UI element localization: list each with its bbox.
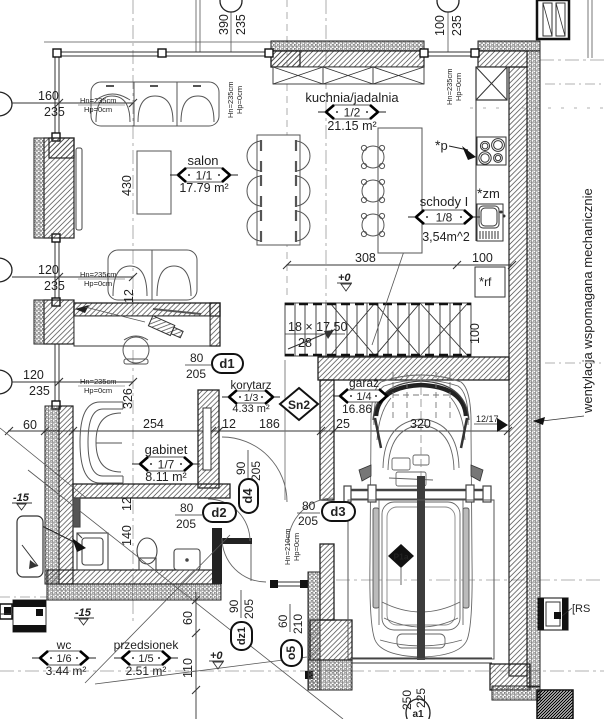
svg-text:235: 235	[44, 279, 65, 293]
svg-text:120: 120	[38, 263, 59, 277]
svg-text:12: 12	[222, 417, 236, 431]
svg-text:4.33 m²: 4.33 m²	[232, 403, 270, 415]
svg-text:254: 254	[143, 417, 164, 431]
svg-text:Hn=210cm: Hn=210cm	[283, 529, 292, 565]
svg-text:dz1: dz1	[236, 627, 248, 645]
svg-text:308: 308	[355, 251, 376, 265]
svg-text:140: 140	[120, 525, 134, 546]
svg-text:60: 60	[276, 614, 290, 628]
svg-text:235: 235	[29, 384, 50, 398]
svg-text:schody I: schody I	[420, 194, 468, 209]
svg-text:Hp=0cm: Hp=0cm	[84, 105, 112, 114]
svg-text:320: 320	[410, 417, 431, 431]
svg-text:205: 205	[186, 367, 206, 381]
svg-text:100: 100	[433, 15, 447, 36]
svg-text:28: 28	[298, 336, 312, 350]
svg-text:d2: d2	[211, 505, 226, 520]
svg-text:kuchnia/jadalnia: kuchnia/jadalnia	[305, 90, 399, 105]
svg-text:P1a: P1a	[393, 552, 408, 562]
svg-text:wc: wc	[56, 638, 72, 652]
svg-text:wentylacja wspomagana mechanic: wentylacja wspomagana mechanicznie	[580, 188, 595, 414]
svg-text:przedsionek: przedsionek	[114, 638, 180, 652]
svg-text:Sn2: Sn2	[288, 398, 310, 412]
svg-text:18 × 17,50: 18 × 17,50	[288, 320, 347, 334]
svg-text:Hp=0cm: Hp=0cm	[84, 386, 112, 395]
svg-text:-15: -15	[75, 607, 92, 619]
svg-text:a1: a1	[412, 709, 424, 719]
svg-text:12/17: 12/17	[476, 414, 499, 424]
svg-text:d3: d3	[330, 504, 345, 519]
svg-text:Hn=235cm: Hn=235cm	[226, 82, 235, 118]
svg-text:1/8: 1/8	[436, 211, 453, 225]
svg-text:salon: salon	[187, 153, 218, 168]
svg-text:205: 205	[249, 461, 263, 481]
svg-text:80: 80	[302, 499, 316, 513]
svg-text:235: 235	[44, 105, 65, 119]
svg-text:[RS: [RS	[572, 603, 590, 615]
svg-text:186: 186	[259, 417, 280, 431]
svg-text:110: 110	[181, 658, 195, 678]
svg-text:o5: o5	[284, 646, 298, 660]
svg-text:d1: d1	[219, 356, 234, 371]
svg-text:60: 60	[181, 611, 195, 625]
svg-text:1/2: 1/2	[344, 106, 361, 120]
svg-text:235: 235	[234, 14, 248, 35]
svg-text:Hp=0cm: Hp=0cm	[235, 86, 244, 114]
svg-text:12: 12	[122, 289, 136, 303]
svg-text:Hp=0cm: Hp=0cm	[292, 533, 301, 561]
svg-text:205: 205	[176, 517, 196, 531]
svg-text:-15: -15	[13, 492, 30, 504]
svg-text:120: 120	[23, 368, 44, 382]
svg-text:21.15 m²: 21.15 m²	[327, 119, 376, 133]
svg-text:Hp=0cm: Hp=0cm	[454, 73, 463, 101]
svg-text:210: 210	[291, 614, 305, 634]
svg-text:160: 160	[38, 89, 59, 103]
svg-text:+0: +0	[210, 650, 223, 662]
svg-text:90: 90	[234, 461, 248, 475]
svg-text:80: 80	[180, 501, 194, 515]
svg-text:60: 60	[23, 418, 37, 432]
svg-text:430: 430	[120, 175, 134, 196]
svg-text:205: 205	[242, 599, 256, 619]
svg-text:235: 235	[450, 15, 464, 36]
svg-text:Hn=235cm: Hn=235cm	[80, 96, 116, 105]
svg-text:Hn=235cm: Hn=235cm	[80, 270, 116, 279]
svg-text:Hn=235cm: Hn=235cm	[445, 69, 454, 105]
svg-text:16.86: 16.86	[342, 402, 372, 416]
svg-text:*zm: *zm	[477, 185, 500, 201]
svg-text:garaż: garaż	[349, 376, 379, 390]
svg-text:100: 100	[468, 323, 482, 344]
svg-text:390: 390	[217, 14, 231, 35]
svg-text:*p: *p	[435, 137, 448, 153]
svg-text:250: 250	[400, 690, 414, 710]
svg-text:17.79 m²: 17.79 m²	[179, 181, 228, 195]
svg-text:gabinet: gabinet	[145, 442, 188, 457]
svg-text:25: 25	[336, 417, 350, 431]
svg-text:12: 12	[120, 497, 134, 511]
svg-text:3.44 m²: 3.44 m²	[46, 664, 87, 678]
svg-text:2.51 m²: 2.51 m²	[126, 664, 167, 678]
svg-text:+0: +0	[338, 272, 351, 284]
svg-text:*rf: *rf	[479, 274, 492, 289]
svg-text:3,54m^2: 3,54m^2	[422, 230, 470, 244]
svg-text:326: 326	[121, 388, 135, 409]
svg-text:8.11 m²: 8.11 m²	[145, 470, 186, 484]
svg-text:225: 225	[414, 688, 428, 708]
svg-text:d4: d4	[240, 488, 255, 504]
svg-text:100: 100	[472, 251, 493, 265]
svg-text:80: 80	[190, 351, 204, 365]
svg-text:Hp=0cm: Hp=0cm	[84, 279, 112, 288]
svg-text:Hn=235cm: Hn=235cm	[80, 377, 116, 386]
svg-text:90: 90	[227, 599, 241, 613]
svg-text:205: 205	[298, 514, 318, 528]
